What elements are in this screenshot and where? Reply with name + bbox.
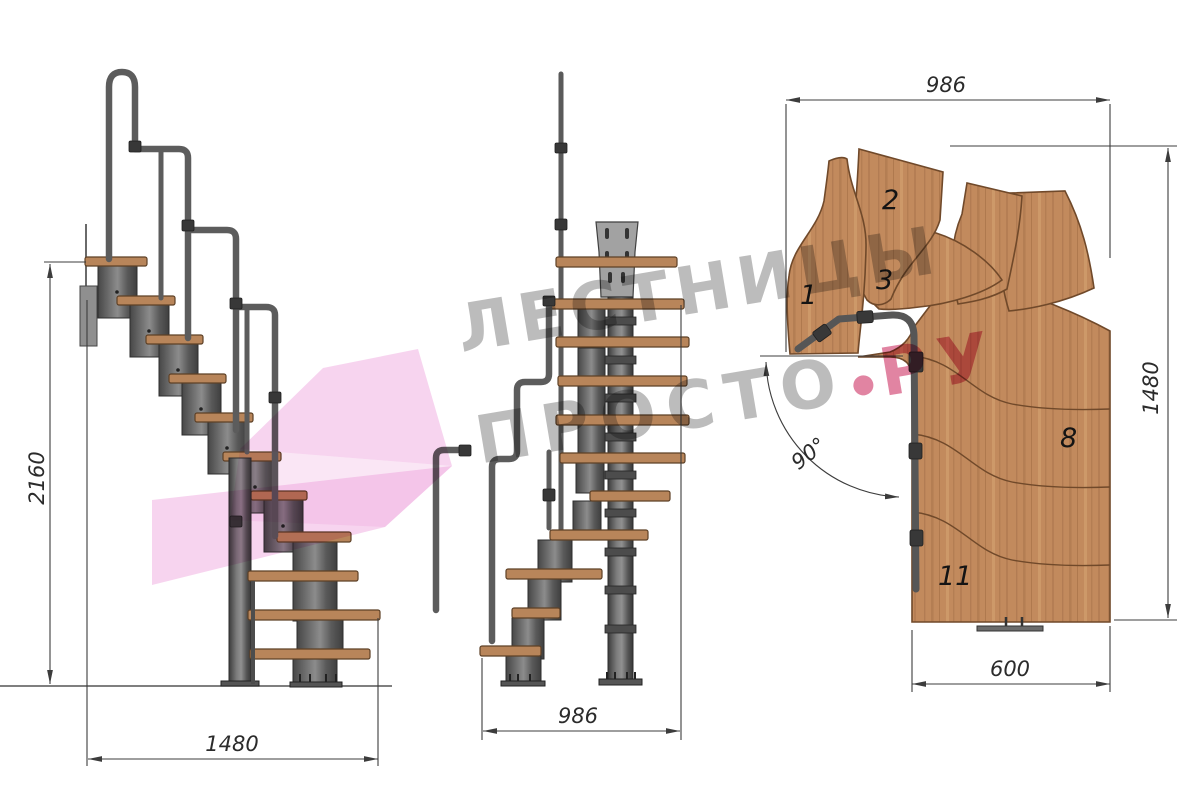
tread-number-2: 2	[882, 185, 899, 216]
angle-arc-90	[766, 362, 899, 497]
plan-view: 1 2 3 8 11 986 1480 600 90°	[760, 73, 1177, 692]
wall-bracket	[80, 286, 97, 346]
support-pole	[229, 458, 251, 683]
dim-label-1480-plan: 1480	[1139, 361, 1163, 414]
dim-label-986-plan: 986	[926, 73, 966, 97]
angle-label-90: 90°	[787, 433, 831, 475]
dim-label-600: 600	[990, 657, 1030, 681]
tread-number-11: 11	[938, 561, 972, 592]
module-base-flange	[290, 682, 342, 687]
tread-number-1: 1	[800, 280, 817, 311]
dim-label-1480-depth: 1480	[205, 732, 258, 756]
handrail-top-loop	[109, 72, 135, 259]
front-handrail-sleeves	[459, 296, 555, 501]
tread-number-3: 3	[876, 265, 893, 296]
dim-label-986-front: 986	[558, 704, 598, 728]
staircase-technical-drawing: 2160 1480	[0, 0, 1200, 807]
front-elevation-view: 986	[436, 74, 689, 740]
side-elevation-view: 2160 1480	[0, 72, 392, 766]
column-base-flange	[599, 679, 642, 685]
drawing-svg: 2160 1480	[0, 0, 1200, 807]
plan-base-flange	[977, 626, 1043, 631]
dim-label-2160: 2160	[25, 451, 49, 504]
tread-number-8: 8	[1060, 423, 1077, 454]
